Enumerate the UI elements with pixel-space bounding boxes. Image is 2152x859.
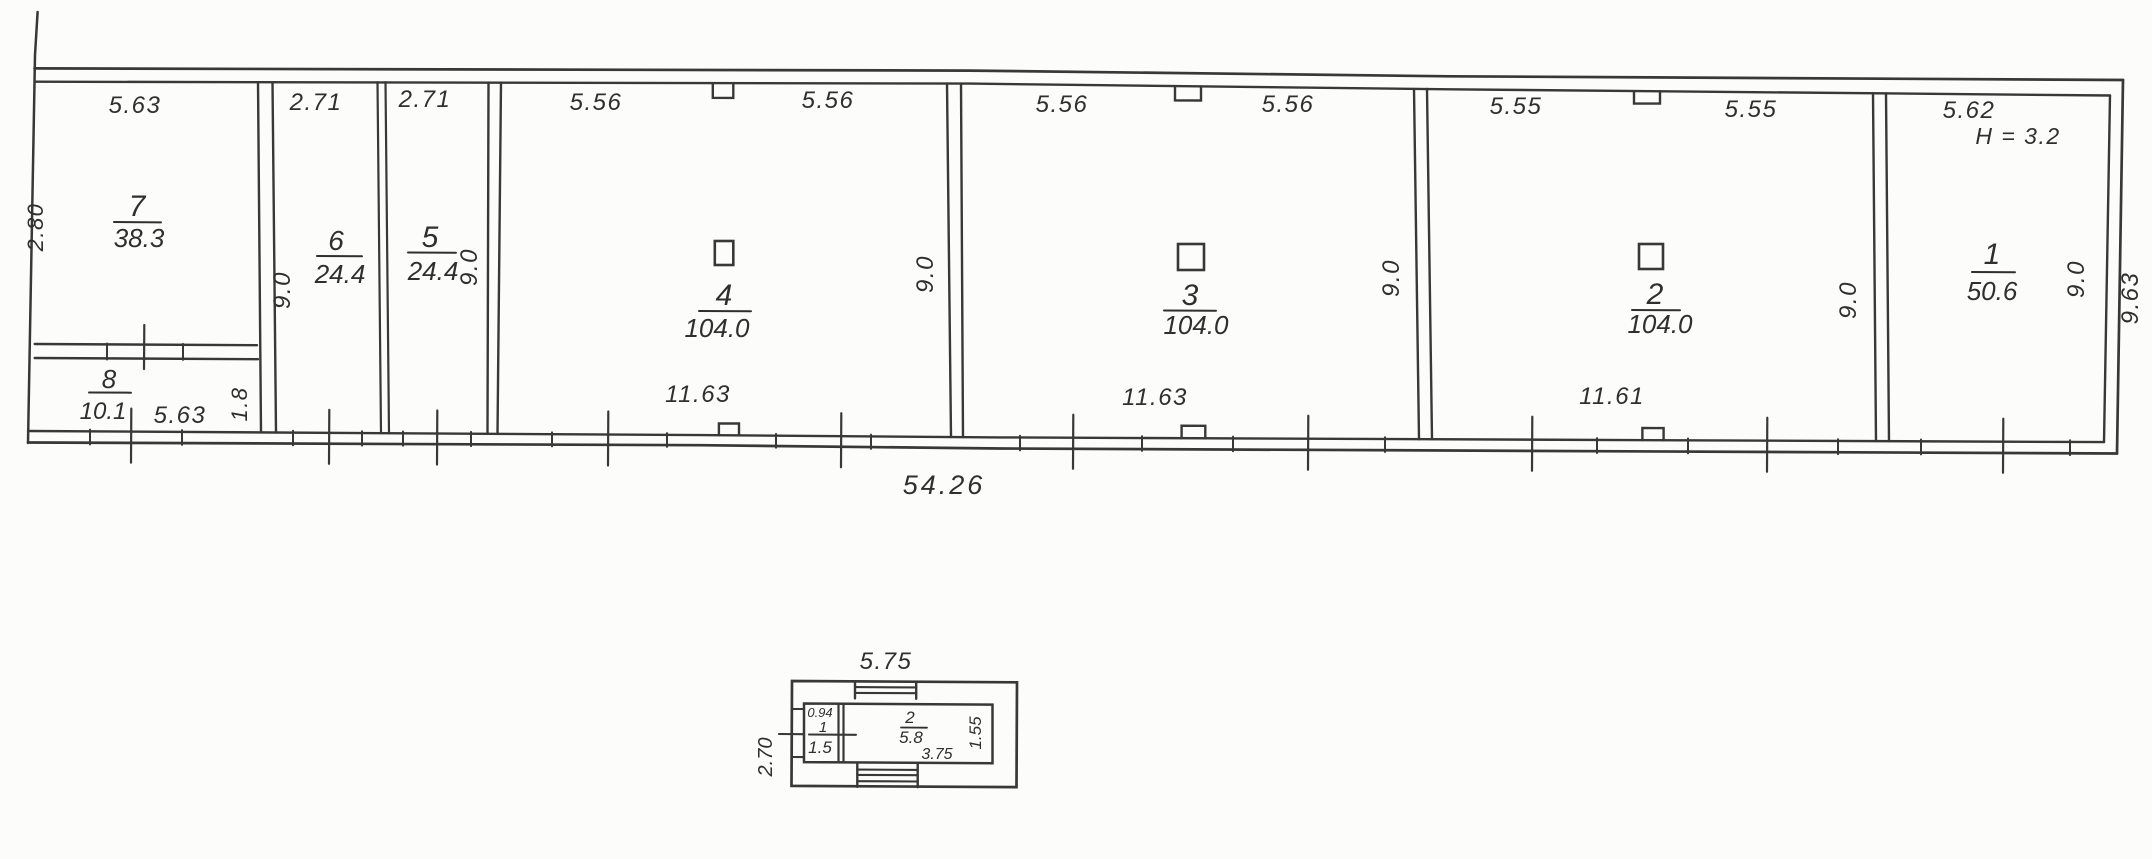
svg-text:5.63: 5.63	[154, 402, 207, 429]
svg-text:24.4: 24.4	[407, 256, 459, 286]
svg-text:9.0: 9.0	[456, 248, 483, 286]
svg-text:1.55: 1.55	[966, 716, 985, 750]
svg-text:9.0: 9.0	[1835, 281, 1862, 319]
svg-text:5: 5	[422, 221, 439, 254]
svg-text:4: 4	[716, 279, 733, 312]
svg-text:1.8: 1.8	[227, 386, 252, 421]
svg-text:104.0: 104.0	[1163, 310, 1229, 340]
svg-text:38.3: 38.3	[114, 223, 165, 253]
svg-text:104.0: 104.0	[1627, 309, 1693, 339]
svg-text:104.0: 104.0	[684, 313, 750, 343]
svg-text:3: 3	[1182, 279, 1199, 312]
svg-text:2.71: 2.71	[289, 89, 343, 116]
svg-text:11.61: 11.61	[1579, 383, 1645, 410]
svg-text:2.70: 2.70	[755, 738, 777, 778]
svg-text:1.5: 1.5	[808, 738, 832, 757]
svg-text:3.75: 3.75	[921, 746, 952, 763]
svg-text:8: 8	[102, 364, 117, 394]
svg-text:5.56: 5.56	[1262, 91, 1315, 118]
svg-text:5.8: 5.8	[899, 728, 923, 747]
svg-text:1: 1	[819, 719, 827, 736]
svg-text:10.1: 10.1	[80, 398, 127, 425]
svg-text:9.0: 9.0	[1378, 259, 1405, 297]
svg-text:11.63: 11.63	[1122, 384, 1188, 411]
svg-text:2.71: 2.71	[398, 86, 452, 113]
svg-text:24.4: 24.4	[314, 259, 366, 289]
svg-text:2: 2	[1646, 278, 1664, 311]
svg-text:9.0: 9.0	[2063, 260, 2090, 298]
svg-text:5.56: 5.56	[1036, 91, 1089, 118]
svg-text:5.56: 5.56	[570, 89, 623, 116]
svg-text:5.55: 5.55	[1725, 96, 1778, 123]
svg-text:5.55: 5.55	[1490, 93, 1543, 120]
svg-text:5.63: 5.63	[109, 92, 162, 119]
svg-text:0.94: 0.94	[807, 705, 832, 720]
svg-text:5.56: 5.56	[802, 87, 855, 114]
svg-text:5.75: 5.75	[860, 648, 913, 675]
svg-text:9.63: 9.63	[2117, 272, 2144, 325]
svg-text:2: 2	[904, 708, 915, 727]
svg-text:54.26: 54.26	[903, 470, 986, 500]
svg-text:50.6: 50.6	[1967, 276, 2018, 306]
svg-text:9.0: 9.0	[912, 255, 939, 293]
svg-text:9.0: 9.0	[269, 271, 296, 309]
svg-text:2.80: 2.80	[23, 203, 48, 253]
svg-text:H = 3.2: H = 3.2	[1975, 123, 2060, 149]
svg-text:6: 6	[328, 225, 344, 256]
svg-text:1: 1	[1984, 238, 2001, 271]
svg-text:5.62: 5.62	[1943, 97, 1996, 124]
svg-text:7: 7	[129, 190, 147, 223]
svg-text:11.63: 11.63	[665, 381, 731, 408]
